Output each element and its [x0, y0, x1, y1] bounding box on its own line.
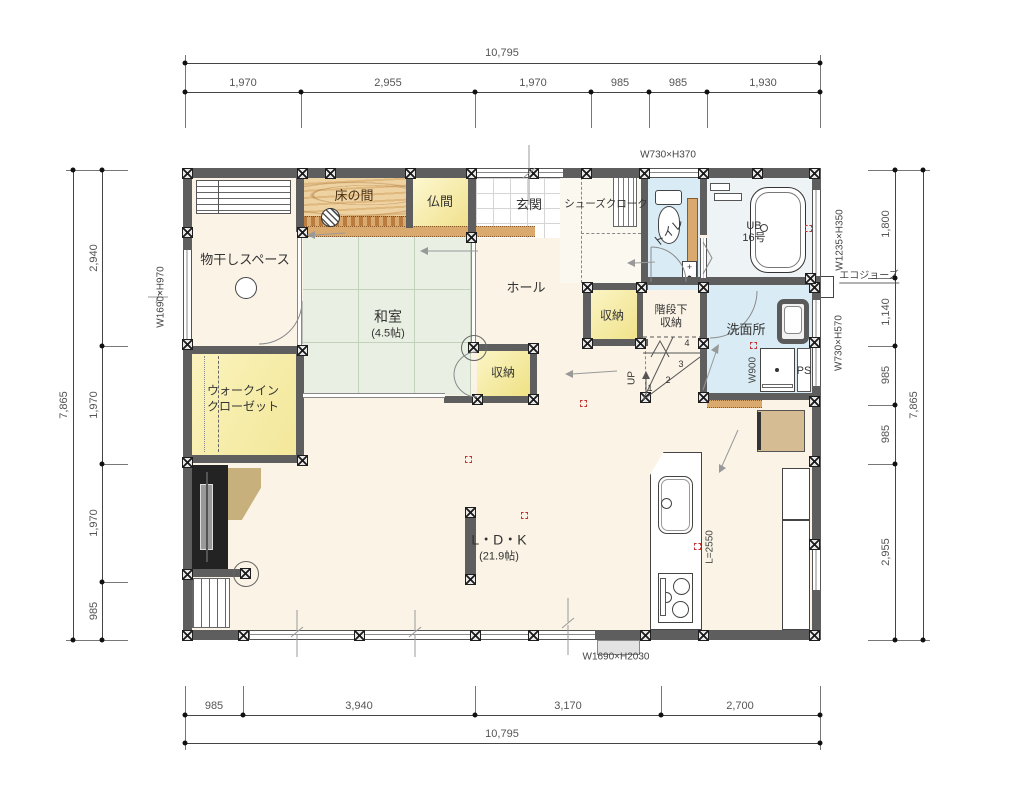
stove-grill: [660, 578, 666, 616]
wall-post: [805, 273, 816, 284]
dim-tick: [591, 92, 592, 128]
dim-dot: [893, 638, 898, 643]
dim-dot: [71, 168, 76, 173]
wall-post: [809, 630, 820, 641]
dim-dot: [659, 713, 664, 718]
dim-dot: [183, 90, 188, 95]
threshold-band-main: [303, 226, 535, 237]
dim-tick: [661, 686, 662, 715]
wall-post: [809, 168, 820, 179]
room-label-ldk: L・D・K (21.9帖): [471, 533, 526, 564]
wall-toilet-left: [641, 168, 648, 290]
dim-right-total-line: [923, 170, 924, 640]
wic-line1: ウォークイン: [207, 383, 279, 397]
wall-post: [809, 456, 820, 467]
wall-post: [238, 630, 249, 641]
dim-top-seg-0: 1,970: [229, 77, 257, 89]
ub-line2: 16号: [742, 232, 765, 244]
wall-post: [752, 168, 763, 179]
shoji-washitsu-bottom: [303, 393, 445, 398]
wall-wic-bottom: [183, 455, 304, 463]
kitchen-length-label: L=2550: [705, 530, 716, 564]
bath-counter: [710, 183, 730, 191]
wic-dotted-line: [204, 356, 205, 452]
dim-top-seg-line: [185, 92, 820, 93]
wall-post: [354, 630, 365, 641]
red-marker-bath: [805, 225, 812, 232]
dim-bottom-seg-1: 3,940: [345, 700, 373, 712]
wall-post: [472, 394, 483, 405]
wall-post: [698, 630, 709, 641]
red-marker-kitchen: [694, 543, 701, 550]
stairs-num-1: 1: [647, 384, 652, 394]
tv-line: [206, 472, 208, 562]
wall-washroom-bottom: [700, 393, 821, 400]
wall-post: [182, 339, 193, 350]
room-label-under-stairs: 階段下 収納: [655, 304, 688, 330]
window-label-bottom: W1690×H2030: [583, 652, 650, 663]
wall-butsuma-genkan: [468, 168, 476, 238]
wall-wstorage-bottom: [444, 396, 537, 403]
dim-dot: [921, 638, 926, 643]
washitsu-name: 和室: [374, 309, 402, 325]
wall-post: [698, 168, 709, 179]
kitchen-cabinet-upper: [782, 468, 810, 520]
dim-right-seg-3: 985: [880, 425, 892, 443]
dim-top-total: 10,795: [485, 47, 519, 59]
dim-dot: [299, 90, 304, 95]
window-kitchen-right: [812, 546, 821, 590]
dim-tick: [475, 686, 476, 715]
dim-dot: [893, 276, 898, 281]
wall-bath-washroom: [641, 277, 821, 285]
dim-dot: [893, 344, 898, 349]
dim-dot: [921, 168, 926, 173]
dim-left-seg-2: 1,970: [88, 509, 100, 537]
stairs-up-label: UP: [627, 371, 638, 385]
dim-dot: [705, 90, 710, 95]
cloak-dashed-mid: [581, 233, 641, 234]
red-marker-ldk: [521, 512, 528, 519]
room-label-tokonoma: 床の間: [334, 189, 373, 203]
ldk-name: L・D・K: [471, 532, 526, 548]
wall-post: [465, 507, 476, 518]
wall-post: [698, 392, 709, 403]
dim-dot: [71, 638, 76, 643]
dim-right-seg-0: 1,800: [880, 210, 892, 238]
wall-wic-top: [183, 346, 304, 354]
bath-shelf: [714, 193, 742, 201]
wall-post: [297, 227, 308, 238]
dim-tick: [649, 92, 650, 128]
dim-tick: [102, 464, 128, 465]
window-label-bath-right: W1235×H350: [835, 209, 846, 270]
wall-post: [182, 569, 193, 580]
ecojozu-unit: [819, 276, 834, 298]
dim-left-seg-3: 985: [88, 602, 100, 620]
monohoshi-pole-socket: [235, 277, 257, 299]
wall-post: [466, 168, 477, 179]
dim-dot: [818, 741, 823, 746]
wall-post: [182, 630, 193, 641]
dim-tick: [475, 92, 476, 128]
red-marker-washroom: [750, 342, 757, 349]
wall-post: [468, 342, 479, 353]
room-label-shoes-cloak: シューズクローク: [564, 199, 647, 211]
dim-left-total: 7,865: [58, 391, 70, 419]
wall-wic-right: [296, 346, 304, 463]
room-label-hall: ホール: [506, 281, 545, 295]
room-label-genkan: 玄関: [516, 198, 542, 212]
wall-post: [698, 338, 709, 349]
wall-post: [581, 168, 592, 179]
wall-post: [182, 457, 193, 468]
wall-post: [698, 282, 709, 293]
threshold-band-washroom: [707, 400, 762, 408]
wall-post: [466, 232, 477, 243]
dim-tick: [868, 464, 895, 465]
dim-top-seg-3: 985: [611, 77, 629, 89]
dim-dot: [893, 168, 898, 173]
washing-machine-dot: [775, 368, 779, 372]
cloak-dashed-left: [581, 172, 582, 283]
dim-top-total-line: [185, 63, 820, 64]
shoji-washitsu-hall: [471, 237, 476, 345]
vanity-basin-inner: [784, 306, 802, 334]
dim-dot: [183, 741, 188, 746]
dim-bottom-seg-3: 2,700: [726, 700, 754, 712]
washing-machine-bar: [762, 384, 793, 388]
dim-left-total-line: [73, 170, 74, 640]
wall-post: [639, 168, 650, 179]
room-label-monohoshi: 物干しスペース: [200, 253, 289, 267]
wall-post: [528, 630, 539, 641]
dim-left-seg-1: 1,970: [88, 391, 100, 419]
shoji-monohoshi-washitsu: [297, 232, 302, 346]
dim-dot: [473, 90, 478, 95]
dim-dot: [100, 580, 105, 585]
dim-dot: [818, 90, 823, 95]
wall-post: [297, 455, 308, 466]
dim-dot: [893, 403, 898, 408]
ps-label: PS: [797, 365, 812, 377]
dim-dot: [100, 638, 105, 643]
red-marker-ldk2: [465, 456, 472, 463]
room-label-wic: ウォークイン クローゼット: [207, 383, 279, 414]
dim-dot: [818, 61, 823, 66]
floor-plan: +●: [0, 0, 1024, 810]
ecojozu-label: エコジョーズ: [839, 271, 899, 284]
dim-dot: [100, 462, 105, 467]
dim-dot: [893, 462, 898, 467]
ldk-size: (21.9帖): [479, 551, 519, 563]
stove-burner-2: [672, 601, 689, 618]
stairs-num-2: 2: [665, 376, 670, 386]
room-label-washroom: 洗面所: [726, 323, 765, 337]
wall-post: [809, 396, 820, 407]
wall-post: [528, 343, 539, 354]
wall-post: [528, 394, 539, 405]
wall-post: [465, 574, 476, 585]
window-toilet-top: [648, 168, 700, 178]
dim-dot: [241, 713, 246, 718]
wall-post: [809, 337, 820, 348]
dim-dot: [100, 344, 105, 349]
dim-right-seg-2: 985: [880, 366, 892, 384]
dim-top-seg-1: 2,955: [374, 77, 402, 89]
dim-tick: [301, 92, 302, 128]
hatched-post-tokonoma: [321, 208, 340, 227]
dim-top-seg-5: 1,930: [749, 77, 777, 89]
wall-post: [240, 568, 251, 579]
window-label-toilet-top: W730×H370: [640, 150, 696, 161]
dim-tick: [102, 346, 128, 347]
washitsu-size: (4.5帖): [371, 328, 405, 340]
red-marker-hall: [580, 400, 587, 407]
wall-post: [325, 168, 336, 179]
wall-post: [297, 345, 308, 356]
dim-dot: [647, 90, 652, 95]
wall-post: [182, 168, 193, 179]
dim-right-total: 7,865: [908, 391, 920, 419]
window-label-left: W1690×H970: [156, 266, 167, 327]
dim-bottom-total-line: [185, 743, 820, 744]
dim-bottom-seg-2: 3,170: [554, 700, 582, 712]
window-bath-door: [700, 238, 707, 278]
ub-line1: UB: [746, 220, 761, 232]
wall-post: [582, 282, 593, 293]
window-entrance-door: [476, 168, 563, 178]
wall-post: [470, 630, 481, 641]
wall-tokonoma-butsuma: [406, 178, 413, 228]
dim-dot: [589, 90, 594, 95]
kitchen-cabinet-lower: [782, 520, 810, 630]
dim-right-seg-4: 2,955: [880, 538, 892, 566]
wall-post: [405, 168, 416, 179]
dim-tick: [868, 346, 895, 347]
deck-steps: [192, 578, 230, 628]
wall-post: [182, 227, 193, 238]
monohoshi-shelf: [196, 180, 291, 214]
dim-dot: [183, 61, 188, 66]
kitchen-faucet: [661, 498, 672, 509]
room-label-ub: UB 16号: [742, 220, 765, 244]
room-label-hall-storage: 収納: [600, 309, 624, 322]
window-label-washroom-right: W730×H570: [834, 315, 845, 371]
dim-tick: [102, 582, 128, 583]
wall-post: [582, 338, 593, 349]
dim-left-seg-line: [102, 170, 103, 640]
monohoshi-shelf-divider: [218, 180, 219, 214]
room-label-washitsu: 和室 (4.5帖): [371, 310, 405, 341]
under-stairs-line1: 階段下: [655, 304, 688, 316]
dim-tick: [243, 686, 244, 715]
wall-post: [636, 282, 647, 293]
wall-post: [528, 168, 539, 179]
stove-burner-1: [673, 578, 690, 595]
dim-dot: [473, 713, 478, 718]
room-label-butsuma: 仏間: [427, 195, 453, 209]
wall-post: [635, 338, 646, 349]
toilet-tank: [655, 190, 682, 205]
dim-dot: [100, 168, 105, 173]
stairs-num-4: 4: [684, 339, 689, 349]
dim-left-seg-0: 2,940: [88, 244, 100, 272]
wall-post: [809, 539, 820, 550]
under-stairs-line2: 収納: [660, 317, 682, 329]
dim-bottom-total: 10,795: [485, 728, 519, 740]
dim-top-seg-4: 985: [669, 77, 687, 89]
dim-bottom-seg-0: 985: [205, 700, 223, 712]
wall-post: [297, 168, 308, 179]
dim-tick: [868, 405, 895, 406]
window-bath-right: [812, 190, 821, 276]
window-left-monohoshi: [183, 250, 192, 345]
vanity-width-label: W900: [748, 357, 759, 383]
dim-bottom-seg-line: [185, 715, 820, 716]
wall-post: [640, 630, 651, 641]
stairs-num-3: 3: [678, 360, 683, 370]
room-label-washitsu-storage: 収納: [491, 366, 515, 379]
dim-top-seg-2: 1,970: [519, 77, 547, 89]
wic-line2: クローゼット: [207, 399, 279, 413]
ldk-cupboard: [757, 410, 805, 452]
ldk-cupboard-edge: [757, 412, 761, 450]
dim-tick: [707, 92, 708, 128]
dim-right-seg-1: 1,140: [880, 298, 892, 326]
dim-dot: [183, 713, 188, 718]
dim-dot: [818, 713, 823, 718]
